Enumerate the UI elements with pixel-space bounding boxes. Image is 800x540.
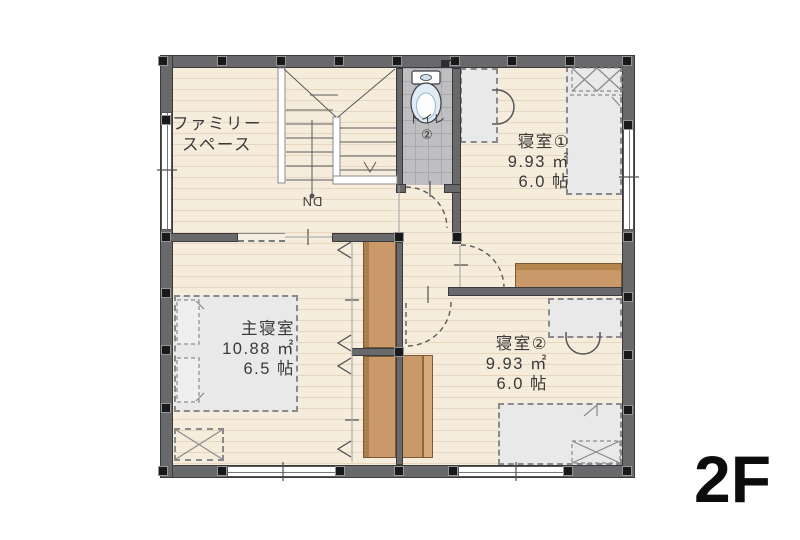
window-bedroom1-right	[623, 125, 634, 230]
bedroom2-desk	[548, 298, 622, 338]
structural-post	[622, 56, 632, 66]
structural-post	[217, 466, 227, 476]
bedroom2-area-sqm: 9.93 ㎡	[456, 354, 548, 374]
master-bedroom-area-jo: 6.5 帖	[198, 359, 295, 379]
structural-post	[623, 120, 633, 130]
structural-post	[507, 56, 517, 66]
structural-post	[158, 466, 168, 476]
bedroom1-label: 寝室① 9.93 ㎡ 6.0 帖	[478, 132, 570, 192]
bedroom2-label: 寝室② 9.93 ㎡ 6.0 帖	[456, 334, 548, 394]
structural-post	[161, 403, 171, 413]
bedroom2-closet	[402, 355, 433, 458]
wall-bedroom-divider	[448, 287, 622, 296]
master-closet-lower	[363, 356, 396, 458]
structural-post	[392, 56, 402, 66]
structural-post	[276, 56, 286, 66]
master-dresser	[174, 428, 224, 461]
window-bedroom2-bottom	[458, 466, 567, 477]
master-closet-upper	[363, 240, 396, 348]
wall-master-top-right	[332, 233, 403, 242]
structural-post	[394, 347, 404, 357]
toilet-name: トイレ	[401, 112, 453, 127]
bedroom1-area-sqm: 9.93 ㎡	[478, 152, 570, 172]
structural-post	[394, 232, 404, 242]
structural-post	[448, 466, 458, 476]
bedroom2-bed	[498, 403, 622, 465]
structural-post	[565, 56, 575, 66]
structural-post	[217, 56, 227, 66]
floor-number-label: 2F	[694, 448, 771, 510]
structural-post	[450, 56, 460, 66]
structural-post	[161, 232, 171, 242]
structural-post	[452, 232, 462, 242]
structural-post	[563, 466, 573, 476]
family-space-label: ファミリー スペース	[163, 114, 271, 156]
master-bedroom-area-sqm: 10.88 ㎡	[198, 339, 295, 359]
structural-post	[623, 350, 633, 360]
structural-post	[161, 288, 171, 298]
wall-master-sliding-door	[238, 233, 285, 242]
structural-post	[623, 405, 633, 415]
structural-post	[158, 56, 168, 66]
bedroom1-name: 寝室①	[478, 132, 570, 152]
structural-post	[623, 292, 633, 302]
master-bedroom-label: 主寝室 10.88 ㎡ 6.5 帖	[198, 319, 295, 379]
structural-post	[334, 56, 344, 66]
bedroom2-name: 寝室②	[456, 334, 548, 354]
wall-master-top-left	[160, 233, 238, 242]
bedroom2-area-jo: 6.0 帖	[456, 374, 548, 394]
master-bedroom-name: 主寝室	[198, 319, 295, 339]
structural-post	[622, 466, 632, 476]
structural-post	[394, 466, 404, 476]
structural-post	[335, 466, 345, 476]
wall-toilet-door-stub-right	[444, 184, 461, 193]
floor-plan-2f: ファミリー スペース トイレ ② 寝室① 9.93 ㎡ 6.0 帖 寝室② 9.…	[0, 0, 800, 540]
structural-post	[623, 232, 633, 242]
stair-dn-label: DN	[294, 194, 330, 209]
family-space-name-1: ファミリー	[163, 114, 271, 135]
toilet-number: ②	[401, 127, 453, 142]
toilet-label: トイレ ②	[401, 112, 453, 142]
bedroom1-counter	[515, 263, 622, 289]
wall-toilet-door-stub-left	[396, 184, 406, 193]
structural-post	[161, 345, 171, 355]
window-master-bottom	[227, 466, 337, 477]
bedroom1-bed	[566, 66, 622, 195]
wall-toilet-right	[452, 68, 461, 244]
bedroom1-area-jo: 6.0 帖	[478, 172, 570, 192]
family-space-name-2: スペース	[163, 135, 271, 156]
